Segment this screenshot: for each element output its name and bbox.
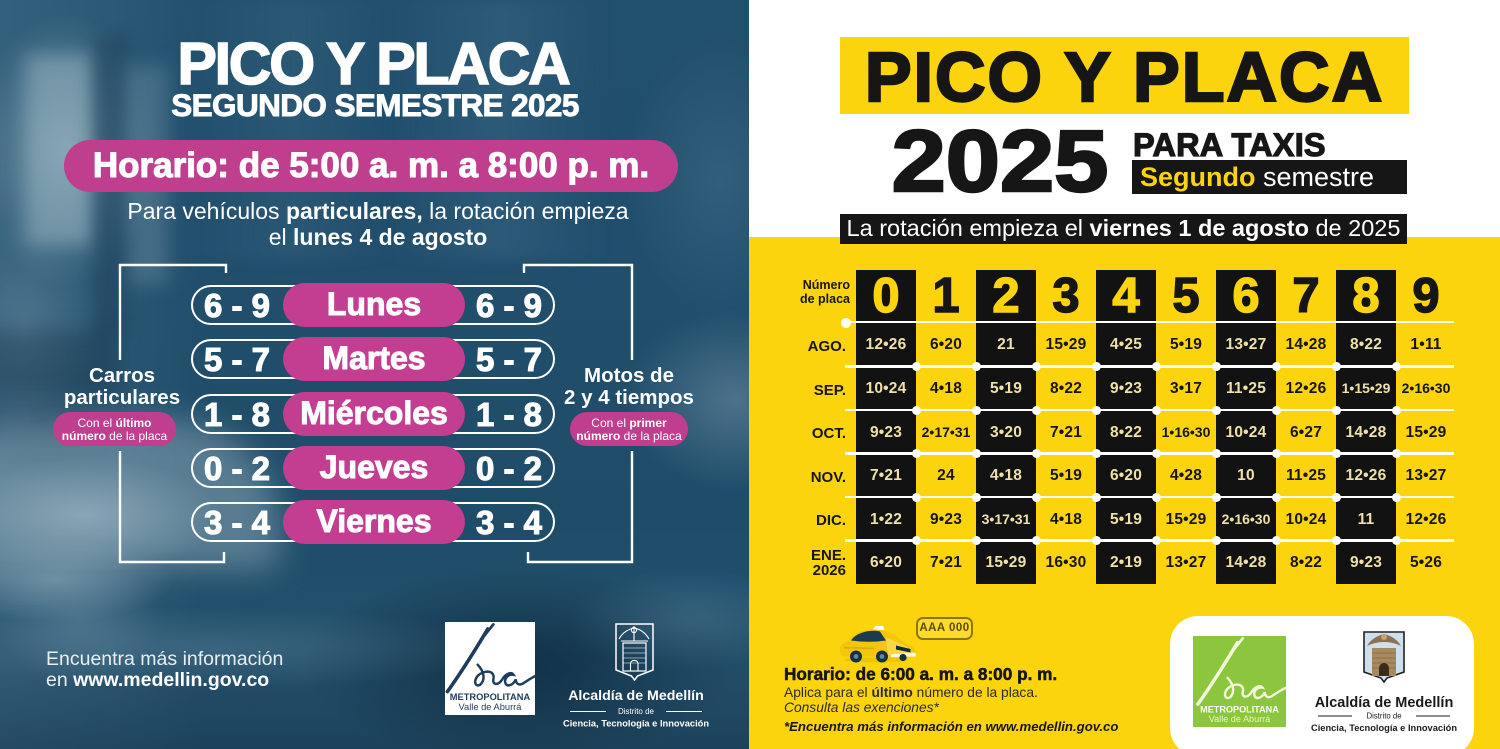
svg-text:Valle de Aburrá: Valle de Aburrá <box>1209 714 1271 724</box>
svg-text:Alcaldía de Medellín: Alcaldía de Medellín <box>568 688 704 704</box>
svg-text:Distrito de: Distrito de <box>1366 712 1401 721</box>
svg-text:METROPOLITANA: METROPOLITANA <box>450 692 531 702</box>
svg-text:Ciencia, Tecnología e Innovaci: Ciencia, Tecnología e Innovación <box>563 719 709 729</box>
svg-text:Valle de Aburrá: Valle de Aburrá <box>459 702 523 712</box>
svg-text:Alcaldía de Medellín: Alcaldía de Medellín <box>1315 695 1454 711</box>
svg-text:METROPOLITANA: METROPOLITANA <box>1200 704 1279 714</box>
svg-text:Distrito de: Distrito de <box>618 707 655 716</box>
svg-text:Ciencia, Tecnología e Innovaci: Ciencia, Tecnología e Innovación <box>1311 723 1457 733</box>
